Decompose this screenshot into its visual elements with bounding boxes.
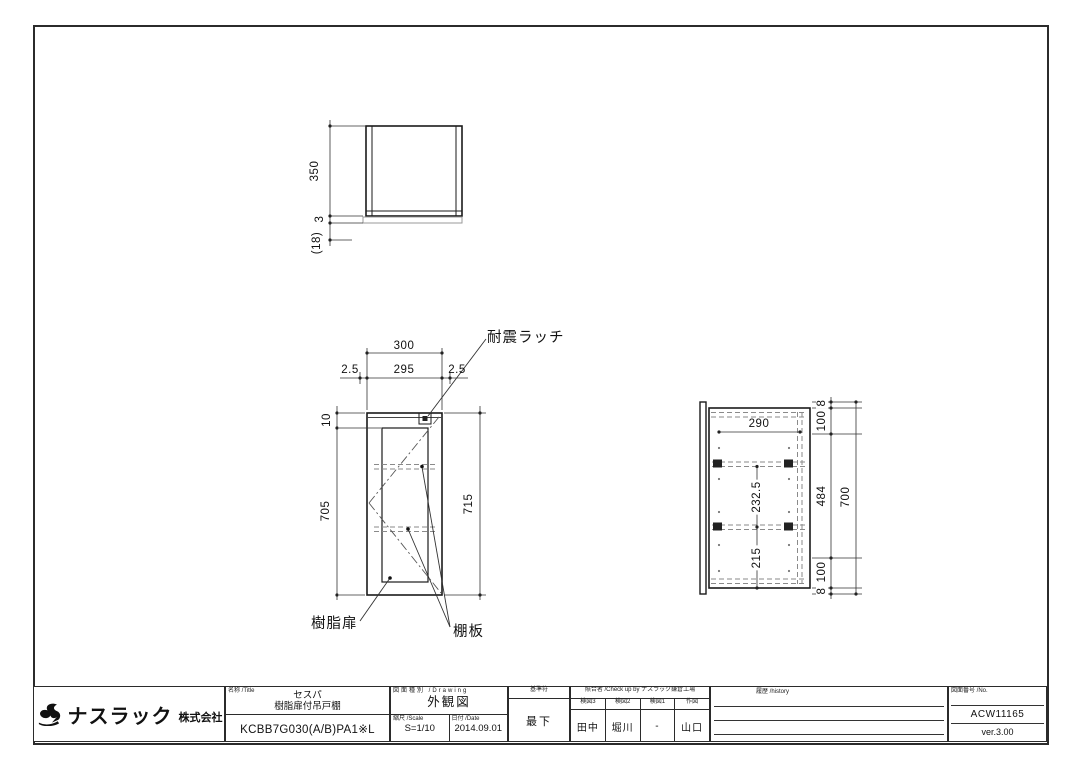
dim-front-295: 295 — [394, 364, 415, 376]
dim-top-350: 350 — [309, 161, 321, 182]
title-label: 名称 /Title — [228, 688, 254, 695]
scale-cell: 縮尺 /Scale S=1/10 — [391, 715, 450, 742]
titleblock-title-cell: 名称 /Title セスパ 樹脂扉付吊戸棚 KCBB7G030(A/B)PA1※… — [225, 686, 390, 742]
dim-side-100-top: 100 — [816, 411, 828, 432]
dim-front-gap-right: 2.5 — [448, 364, 466, 376]
label-shelf-board: 棚板 — [453, 620, 484, 641]
date-value: 2014.09.01 — [454, 723, 502, 734]
label-quake-latch: 耐震ラッチ — [487, 326, 565, 347]
side-view-linework — [700, 397, 862, 599]
checker-col-3: 検図3 田中 — [571, 699, 606, 742]
titleblock-company-cell: ナスラック 株式会社 — [33, 686, 225, 742]
checker-col-draw: 作図 山口 — [675, 699, 709, 742]
titleblock-history-cell: 履歴 /history — [710, 686, 948, 742]
dim-side-700: 700 — [840, 487, 852, 508]
dim-front-705: 705 — [320, 501, 332, 522]
dim-side-8-bottom: 8 — [816, 586, 828, 597]
product-title: 名称 /Title セスパ 樹脂扉付吊戸棚 — [226, 687, 389, 715]
dim-side-484: 484 — [816, 486, 828, 507]
history-header: 履歴 /history — [756, 689, 789, 696]
dim-side-8-top: 8 — [816, 398, 828, 409]
checker-value: 田中 — [571, 710, 605, 742]
checker-header: 検図3 — [571, 699, 605, 710]
date-cell: 日付 /Date 2014.09.01 — [450, 715, 508, 742]
company-logo: ナスラック 株式会社 — [34, 687, 224, 741]
dim-side-215: 215 — [751, 546, 763, 571]
ref-label: 基準符 — [509, 687, 569, 699]
titleblock-drawing-cell: 図面種別 /Drawing 外観図 縮尺 /Scale S=1/10 日付 /D… — [390, 686, 508, 742]
checker-header: 検図1 — [641, 699, 675, 710]
titleblock-check-cell: 照合者 /Check up by ナスラック鎌倉工場 検図3 田中 検図2 堀川… — [570, 686, 710, 742]
history-row-line — [714, 720, 944, 721]
history-row-line — [714, 734, 944, 735]
drawing-canvas — [0, 0, 1080, 763]
top-view-linework — [328, 120, 462, 246]
history-row-line — [714, 706, 944, 707]
company-suffix: 株式会社 — [179, 709, 223, 725]
dim-side-290: 290 — [749, 418, 770, 430]
checker-value: 山口 — [675, 710, 709, 742]
checker-header: 検図2 — [606, 699, 640, 710]
drawing-version: ver.3.00 — [949, 724, 1046, 740]
drawing-no-label: 図面番号 /No. — [951, 688, 988, 695]
scale-value: S=1/10 — [405, 723, 435, 734]
company-name: ナスラック — [68, 700, 173, 729]
dim-front-715: 715 — [463, 494, 475, 515]
swan-icon — [36, 702, 62, 726]
dim-front-gap-left: 2.5 — [341, 364, 359, 376]
dim-front-10: 10 — [321, 413, 333, 427]
date-label: 日付 /Date — [452, 716, 480, 723]
dim-top-3: 3 — [314, 216, 326, 223]
scale-label: 縮尺 /Scale — [393, 716, 423, 723]
dim-side-100-bottom: 100 — [816, 562, 828, 583]
label-resin-door: 樹脂扉 — [311, 612, 358, 633]
model-number: KCBB7G030(A/B)PA1※L — [226, 715, 389, 742]
checker-header: 作図 — [675, 699, 709, 710]
drawing-sheet: 350 3 (18) 300 2.5 295 2.5 10 705 715 29… — [0, 0, 1080, 763]
drawing-type-label: 図面種別 /Drawing — [393, 688, 468, 695]
ref-value: 最下 — [509, 699, 569, 742]
dim-side-232-5: 232.5 — [751, 479, 763, 514]
checker-value: - — [641, 710, 675, 742]
checker-col-2: 検図2 堀川 — [606, 699, 641, 742]
checker-col-1: 検図1 - — [641, 699, 676, 742]
product-name: 樹脂扉付吊戸棚 — [274, 701, 341, 712]
drawing-type: 図面種別 /Drawing 外観図 — [391, 687, 507, 715]
product-series: セスパ — [293, 690, 322, 701]
checker-value: 堀川 — [606, 710, 640, 742]
dim-front-300: 300 — [394, 340, 415, 352]
drawing-number: ACW11165 — [949, 706, 1046, 723]
titleblock-ref-cell: 基準符 最下 — [508, 686, 570, 742]
titleblock-number-cell: 図面番号 /No. ACW11165 ver.3.00 — [948, 686, 1047, 742]
dim-top-18: (18) — [311, 232, 323, 254]
checkup-header: 照合者 /Check up by ナスラック鎌倉工場 — [571, 687, 709, 699]
front-view-linework — [335, 339, 486, 627]
